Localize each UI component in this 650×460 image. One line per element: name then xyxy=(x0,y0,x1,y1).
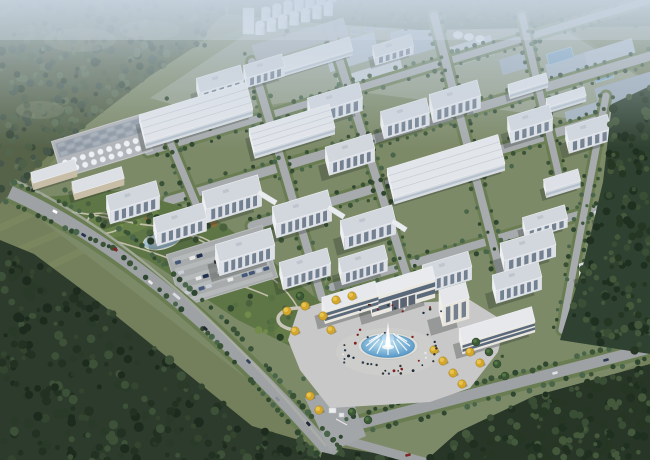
aerial-campus-rendering xyxy=(0,0,650,460)
screenshot-root xyxy=(0,0,650,460)
horizon-fog xyxy=(0,0,650,40)
